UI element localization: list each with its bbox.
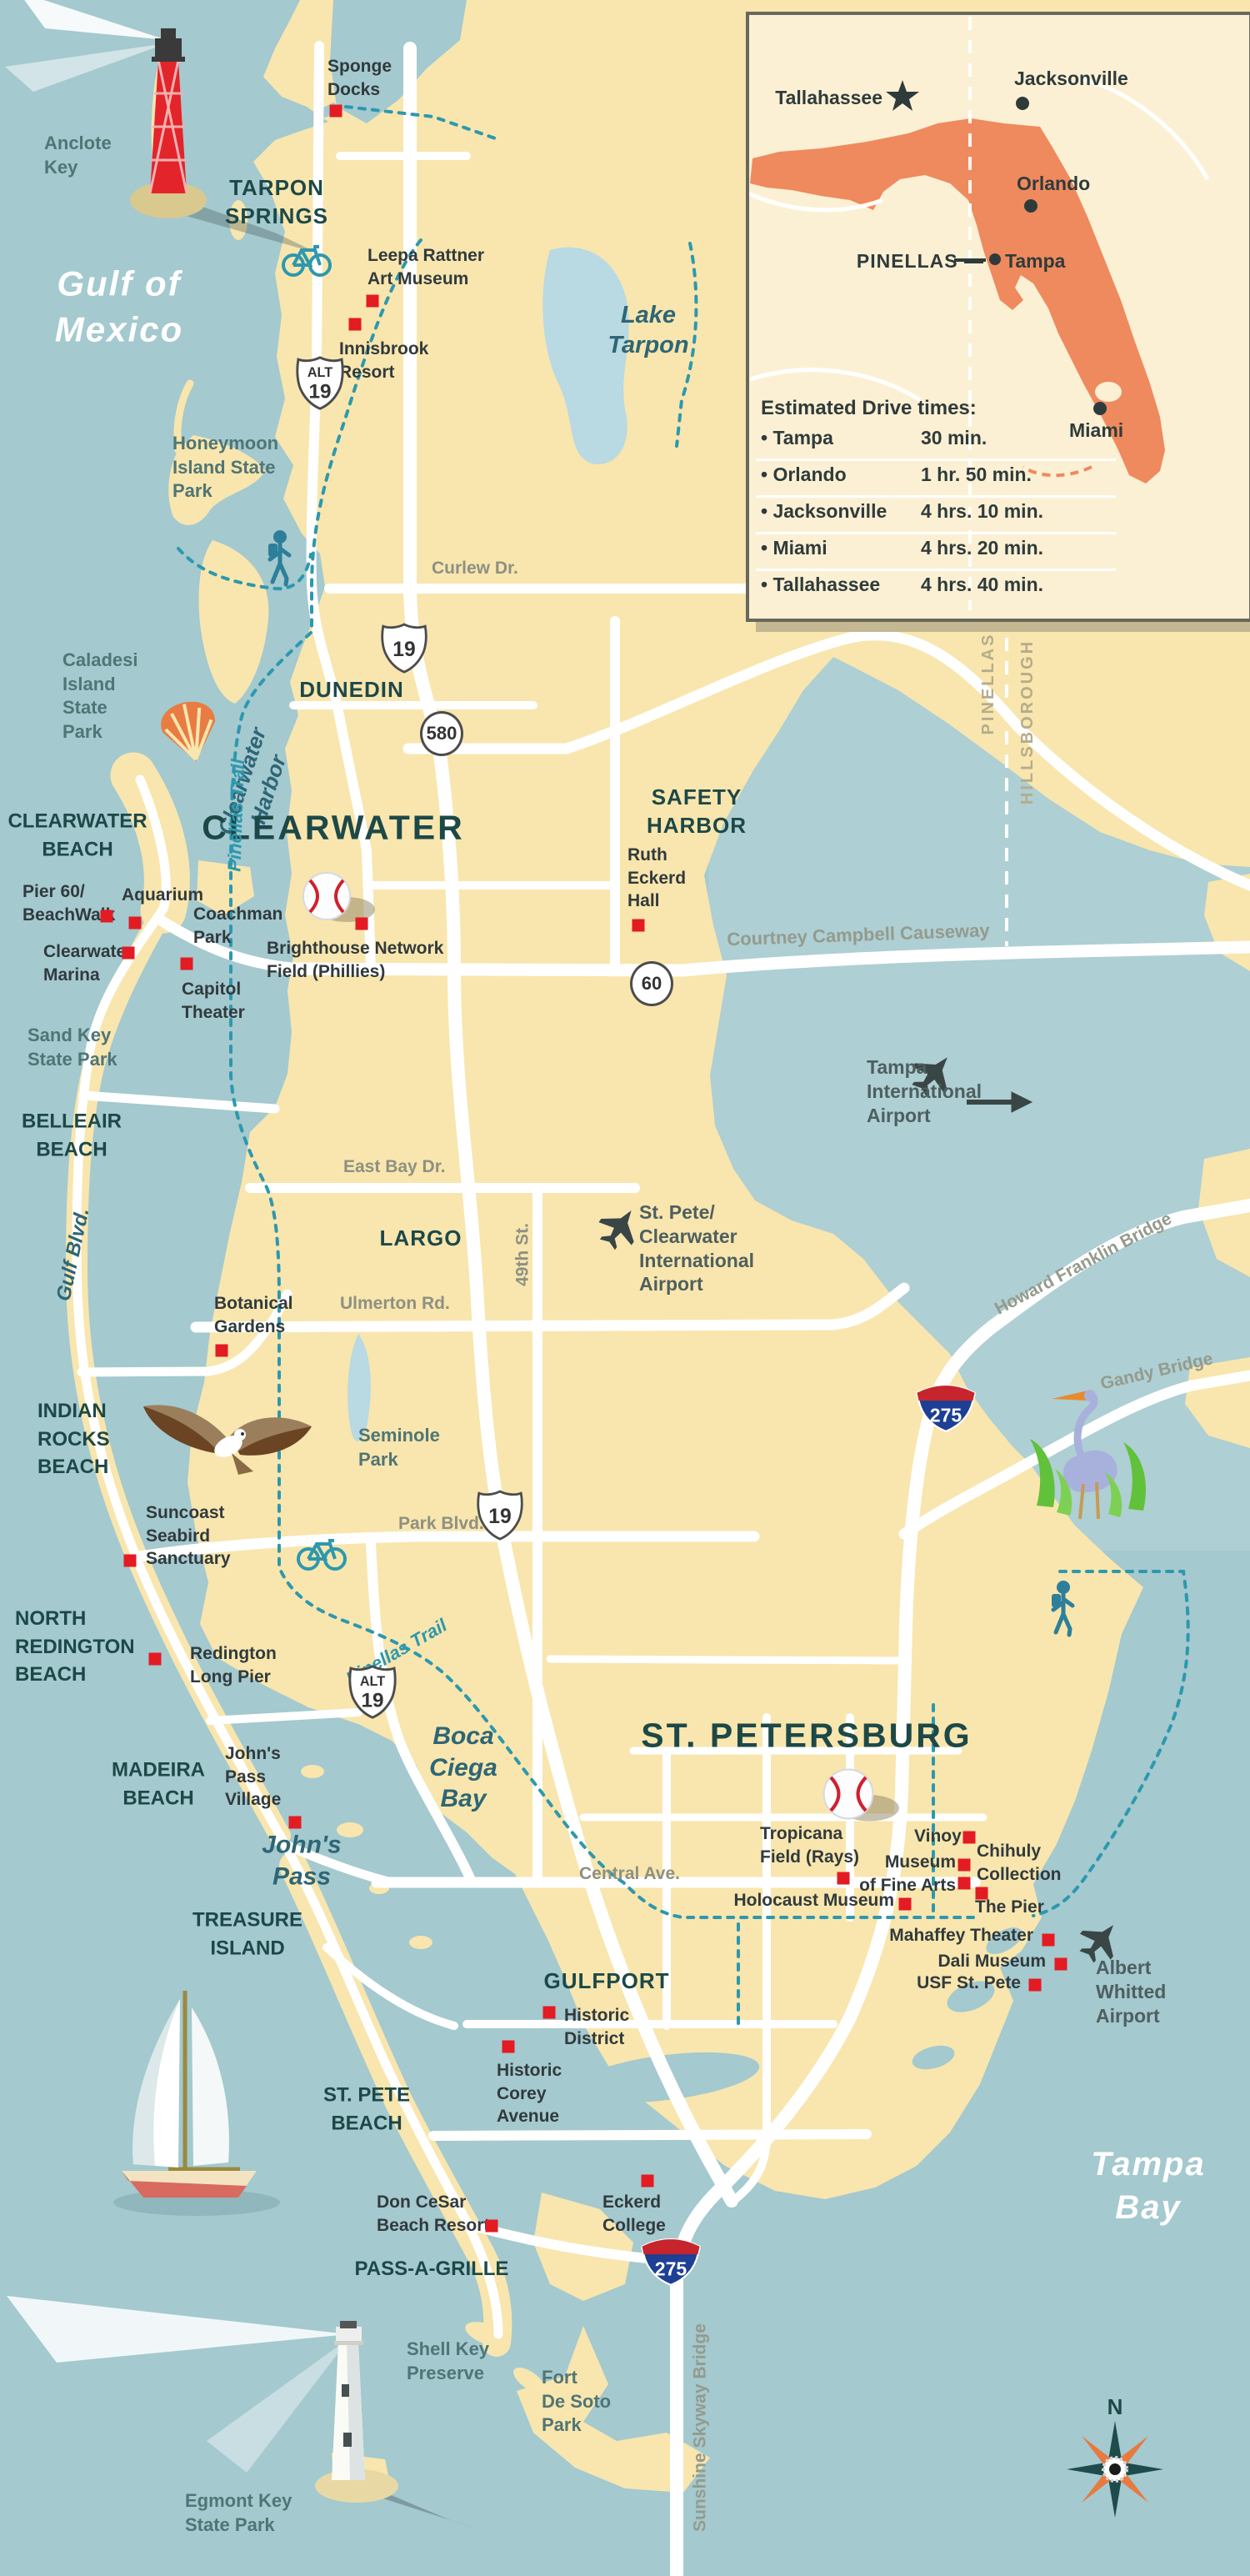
marker-chihuly [958, 1859, 971, 1872]
attr-brighthouse: Brighthouse Network Field (Phillies) [267, 937, 443, 983]
city-safety-harbor: SAFETY HARBOR [647, 784, 747, 840]
county-hillsborough: HILLSBOROUGH [1017, 639, 1038, 804]
drive-times-separator [756, 495, 1116, 498]
marker-capitol-theater [181, 958, 193, 970]
drive-time-value: 30 min. [921, 427, 987, 449]
drive-time-city: • Miami [761, 537, 827, 559]
sr580-number: 580 [427, 723, 457, 744]
drive-times-separator [756, 459, 1116, 461]
marker-eckerd-college [642, 2175, 654, 2188]
city-st-pete-beach: ST. PETE BEACH [323, 2081, 410, 2137]
inset-pinellas: PINELLAS — [826, 249, 984, 274]
svg-text:19: 19 [488, 1506, 511, 1528]
drive-time-row: • Tampa30 min. [761, 427, 1119, 449]
drive-time-row: • Miami4 hrs. 20 min. [761, 537, 1119, 559]
marker-aquarium [129, 917, 142, 930]
marker-mahaffey [1042, 1934, 1055, 1947]
marker-historic-corey [502, 2041, 515, 2053]
marker-clearwater-marina [122, 947, 135, 960]
gulf-of-mexico-label: Gulf of Mexico [55, 261, 183, 352]
city-gulfport: GULFPORT [544, 1967, 670, 1996]
svg-text:19: 19 [308, 380, 331, 403]
attr-historic-corey: Historic Corey Avenue [497, 2059, 562, 2128]
attr-aquarium: Aquarium [122, 884, 203, 907]
drive-time-city: • Tampa [761, 427, 833, 449]
svg-text:19: 19 [392, 639, 415, 661]
attr-historic-district: Historic District [564, 2004, 629, 2050]
drive-time-value: 4 hrs. 10 min. [921, 500, 1043, 523]
marker-vinoy [963, 1832, 976, 1844]
drive-time-value: 4 hrs. 40 min. [921, 574, 1043, 596]
attr-don-cesar: Don CeSar Beach Resort [377, 2191, 489, 2237]
road-ulmerton: Ulmerton Rd. [340, 1292, 450, 1315]
marker-tropicana [837, 1872, 850, 1885]
attr-johns-pass-village: John's Pass Village [225, 1742, 281, 1812]
airport-st-pete-clearwater: St. Pete/ Clearwater International Airpo… [639, 1200, 754, 1296]
marker-the-pier [976, 1887, 988, 1900]
marker-pier-60 [101, 910, 113, 923]
park-caladesi-island: Caladesi Island State Park [62, 649, 138, 744]
city-st-petersburg: ST. PETERSBURG [641, 1713, 972, 1757]
inset-tampa: Tampa [1005, 249, 1065, 274]
drive-times-separator [756, 532, 1116, 534]
marker-don-cesar [486, 2220, 498, 2233]
capital-star-icon [886, 80, 919, 111]
park-anclote-key: Anclote Key [44, 132, 112, 179]
svg-text:275: 275 [655, 2258, 687, 2279]
marker-leepa-rattner [367, 295, 379, 308]
marker-johns-pass-village [289, 1817, 302, 1829]
inset-orlando: Orlando [1017, 172, 1090, 197]
attr-leepa-rattner: Leepa Rattner Art Museum [367, 244, 484, 290]
marker-suncoast-seabird [124, 1555, 137, 1567]
park-honeymoon-island: Honeymoon Island State Park [172, 432, 278, 504]
attr-mahaffey-theater: Mahaffey Theater [867, 1924, 1033, 1947]
city-madeira-beach: MADEIRA BEACH [112, 1756, 205, 1812]
marker-holocaust [899, 1898, 912, 1911]
drive-time-row: • Orlando1 hr. 50 min. [761, 464, 1119, 486]
svg-text:ALT: ALT [307, 365, 332, 380]
boca-ciega-bay-label: Boca Ciega Bay [429, 1721, 497, 1815]
compass-north-label: N [1107, 2393, 1123, 2422]
city-tarpon-springs: TARPON SPRINGS [225, 174, 328, 231]
marker-botanical-gardens [216, 1345, 228, 1357]
florida-inset-panel: Tallahassee Jacksonville Orlando Tampa P… [746, 12, 1250, 622]
marker-sponge-docks [330, 105, 342, 118]
road-east-bay: East Bay Dr. [343, 1155, 446, 1178]
park-seminole: Seminole Park [358, 1424, 440, 1471]
road-curlew: Curlew Dr. [432, 557, 518, 579]
marker-innisbrook [349, 318, 362, 331]
park-egmont-key: Egmont Key State Park [185, 2489, 292, 2537]
marker-brighthouse [356, 918, 368, 930]
park-sand-key: Sand Key State Park [27, 1024, 117, 1071]
attr-redington-long-pier: Redington Long Pier [190, 1642, 277, 1688]
road-central-ave: Central Ave. [579, 1862, 680, 1885]
city-clearwater-beach: CLEARWATER BEACH [7, 807, 147, 863]
attr-botanical-gardens: Botanical Gardens [214, 1292, 293, 1338]
drive-time-row: • Tallahassee4 hrs. 40 min. [761, 574, 1119, 596]
trail-pinellas-north: Pinellas Trail [222, 759, 250, 872]
attr-chihuly: Chihuly Collection [977, 1840, 1062, 1886]
attr-vinoy: Vinoy [914, 1825, 962, 1848]
marker-dali [1055, 1958, 1067, 1971]
inset-jacksonville: Jacksonville [1014, 67, 1128, 92]
drive-times-title: Estimated Drive times: [761, 395, 977, 421]
city-pass-a-grille: PASS-A-GRILLE [355, 2255, 509, 2283]
airport-tampa-international: Tampa International Airport [867, 1055, 982, 1127]
attr-dali-museum: Dali Museum [904, 1950, 1046, 1973]
sr60-number: 60 [642, 973, 662, 995]
county-pinellas: PINELLAS [977, 633, 999, 735]
city-treasure-island: TREASURE ISLAND [192, 1906, 302, 1962]
lake-okeechobee [1095, 382, 1122, 402]
drive-time-row: • Jacksonville4 hrs. 10 min. [761, 500, 1119, 523]
city-belleair-beach: BELLEAIR BEACH [22, 1107, 122, 1163]
alt19-shield-north: ALT19 [296, 356, 344, 415]
road-sunshine-skyway: Sunshine Skyway Bridge [688, 2323, 711, 2532]
attr-innisbrook: Innisbrook Resort [339, 338, 428, 383]
road-park-blvd: Park Blvd. [398, 1512, 484, 1535]
park-shell-key: Shell Key Preserve [407, 2338, 489, 2385]
sr60-shield: 60 [630, 961, 673, 1006]
us19-shield-north: 19 [381, 623, 427, 679]
city-indian-rocks-beach: INDIAN ROCKS BEACH [37, 1397, 110, 1481]
us19-shield-south: 19 [477, 1490, 523, 1546]
marker-redington-pier [149, 1653, 162, 1666]
marker-museum-fine-arts [958, 1877, 971, 1890]
attr-eckerd-college: Eckerd College [602, 2191, 666, 2237]
city-largo: LARGO [380, 1225, 462, 1253]
i275-shield-north: 275 [916, 1385, 976, 1437]
airport-albert-whitted: Albert Whitted Airport [1096, 1956, 1166, 2027]
drive-time-city: • Orlando [761, 464, 847, 485]
pinellas-county-map: Gulf of Mexico Tampa Bay Lake Tarpon Cle… [0, 0, 1250, 2576]
tampa-bay-label: Tampa Bay [1091, 2142, 1205, 2229]
attr-suncoast-seabird: Suncoast Seabird Sanctuary [146, 1501, 231, 1571]
attr-sponge-docks: Sponge Docks [327, 55, 392, 101]
drive-time-city: • Tallahassee [761, 574, 880, 595]
inset-tallahassee: Tallahassee [757, 86, 882, 111]
drive-time-value: 1 hr. 50 min. [921, 464, 1032, 486]
drive-time-city: • Jacksonville [761, 500, 887, 522]
marker-usf-st-pete [1029, 1979, 1042, 1992]
marker-ruth-eckerd [632, 920, 645, 932]
johns-pass-label: John's Pass [262, 1830, 341, 1892]
park-fort-de-soto: Fort De Soto Park [542, 2366, 611, 2438]
city-north-redington-beach: NORTH REDINGTON BEACH [15, 1605, 135, 1689]
lake-tarpon-label: Lake Tarpon [607, 300, 688, 361]
attr-clearwater-marina: Clearwater Marina [43, 940, 132, 986]
sr580-shield: 580 [420, 711, 463, 756]
attr-ruth-eckerd: Ruth Eckerd Hall [627, 844, 686, 913]
i275-shield-south: 275 [641, 2238, 701, 2291]
attr-holocaust-museum: Holocaust Museum [732, 1889, 894, 1912]
drive-time-value: 4 hrs. 20 min. [921, 537, 1043, 559]
svg-text:19: 19 [361, 1689, 383, 1711]
attr-usf-st-pete: USF St. Pete [879, 1972, 1021, 1995]
road-49th-st: 49th St. [511, 1223, 533, 1286]
marker-historic-district [543, 2007, 556, 2019]
city-dunedin: DUNEDIN [299, 676, 403, 704]
alt19-shield-south: ALT19 [348, 1665, 397, 1724]
svg-text:275: 275 [930, 1404, 962, 1426]
svg-text:ALT: ALT [360, 1674, 385, 1689]
drive-times-separator [756, 569, 1116, 571]
attr-capitol-theater: Capitol Theater [182, 978, 245, 1024]
